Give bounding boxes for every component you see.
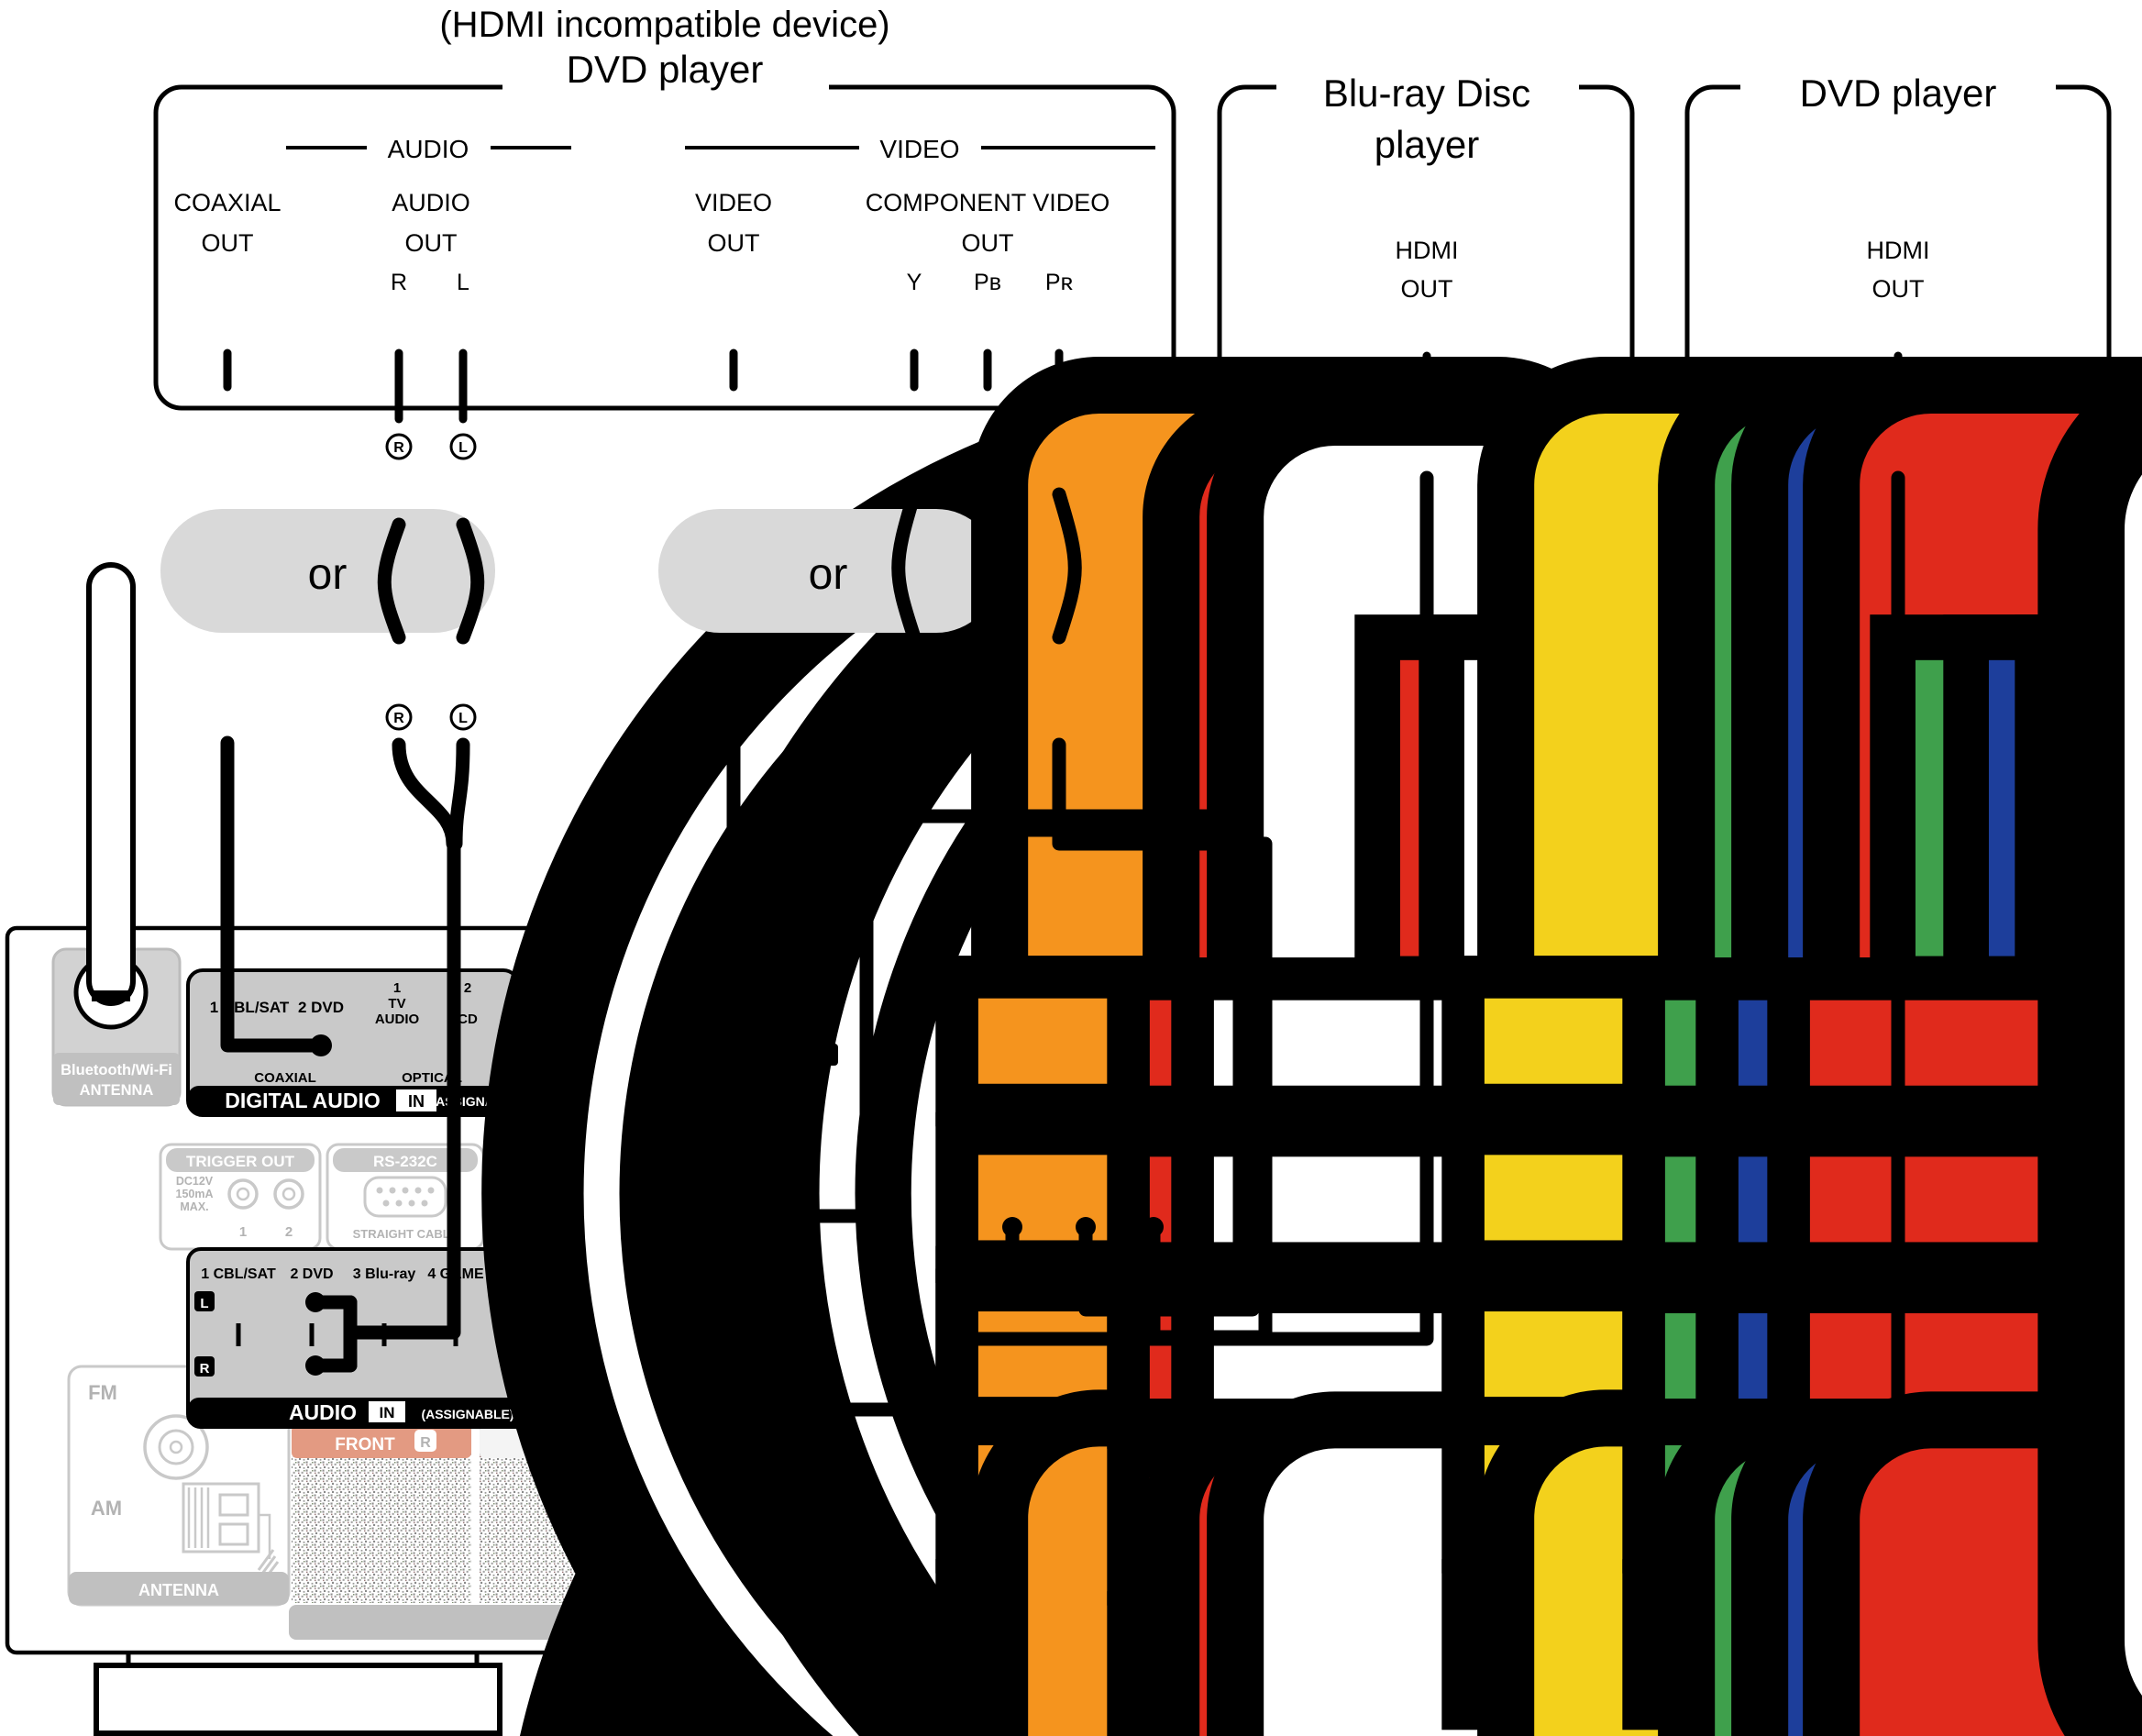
- am-label: AM: [91, 1497, 122, 1520]
- rs232-title: RS-232C: [373, 1153, 437, 1170]
- or-label-2: or: [809, 550, 848, 599]
- plug-r-letter2: R: [393, 711, 404, 726]
- ai-in: IN: [380, 1404, 395, 1421]
- dvd-analog-title: DVD player: [567, 48, 764, 91]
- da-tv-2: TV: [388, 996, 405, 1012]
- bt-left-line2: ANTENNA: [80, 1082, 154, 1099]
- ai-r: R: [200, 1361, 210, 1377]
- da-in: IN: [408, 1092, 425, 1111]
- plug-l-letter: L: [458, 440, 468, 456]
- trigger-v2: 150mA: [176, 1188, 214, 1200]
- diagram-canvas: Bluetooth/Wi-Fi ANTENNA HDMI OUT ZONE2 M…: [0, 0, 2142, 1736]
- or-pills: or or: [160, 509, 998, 633]
- component-out-label2: OUT: [962, 229, 1014, 257]
- video-out-label: VIDEO: [695, 189, 772, 216]
- bt-left-line1: Bluetooth/Wi-Fi: [61, 1062, 172, 1078]
- spk-front-r: FRONT: [335, 1435, 395, 1454]
- da-cd-1: 2: [464, 980, 471, 996]
- ai-c2: 2 DVD: [290, 1266, 333, 1282]
- trigger-2: 2: [285, 1224, 293, 1240]
- da-tv-1: 1: [393, 980, 401, 996]
- audio-out-label2: OUT: [405, 229, 458, 257]
- trigger-out-block: TRIGGER OUT DC12V 150mA MAX. 1 2: [160, 1144, 320, 1249]
- component-out-label: COMPONENT VIDEO: [866, 189, 1110, 216]
- trigger-1: 1: [239, 1224, 247, 1240]
- ai-c3: 3 Blu-ray: [353, 1266, 416, 1282]
- bluray-hdmi: HDMI: [1396, 237, 1459, 264]
- rs232-connector-icon: [365, 1178, 446, 1216]
- coaxial-out-label2: OUT: [202, 229, 254, 257]
- plug-l-letter2: L: [458, 711, 468, 726]
- dvd-analog-subtitle: (HDMI incompatible device): [439, 5, 889, 45]
- da-dvd-label: 2 DVD: [298, 999, 344, 1016]
- rs232-sub: STRAIGHT CABLE: [353, 1227, 458, 1241]
- spk-front-r-ch: R: [420, 1435, 431, 1451]
- ai-title: AUDIO: [289, 1400, 357, 1424]
- plug-r-letter: R: [393, 440, 404, 456]
- dvd-hdmi-hdmi: HDMI: [1867, 237, 1930, 264]
- video-out-label2: OUT: [708, 229, 760, 257]
- ai-c1: 1 CBL/SAT: [201, 1266, 276, 1282]
- bluray-title-1: Blu-ray Disc: [1323, 72, 1530, 115]
- audio-out-label: AUDIO: [392, 189, 470, 216]
- trigger-title: TRIGGER OUT: [186, 1153, 295, 1170]
- ai-l: L: [200, 1296, 208, 1311]
- audio-out-r: R: [391, 270, 407, 295]
- ai-assignable: (ASSIGNABLE): [421, 1407, 513, 1421]
- dvd-hdmi-out: OUT: [1872, 275, 1925, 303]
- da-coaxial: COAXIAL: [254, 1070, 316, 1086]
- bluray-hdmi-plug: [2081, 391, 2142, 1736]
- video-section-header: VIDEO: [879, 135, 959, 163]
- component-pb: Pʙ: [974, 270, 1001, 295]
- fm-label: FM: [88, 1381, 117, 1404]
- bluray-out: OUT: [1401, 275, 1453, 303]
- component-pr: Pʀ: [1045, 270, 1074, 295]
- component-y: Y: [907, 270, 922, 295]
- connection-diagram: Bluetooth/Wi-Fi ANTENNA HDMI OUT ZONE2 M…: [0, 0, 2142, 1736]
- da-tv-3: AUDIO: [375, 1012, 420, 1027]
- da-title: DIGITAL AUDIO: [225, 1089, 381, 1112]
- coaxial-out-label: COAXIAL: [173, 189, 281, 216]
- or-label-1: or: [308, 550, 348, 599]
- dvd-hdmi-title: DVD player: [1800, 72, 1997, 115]
- audio-section-header: AUDIO: [388, 135, 469, 163]
- audio-out-l: L: [457, 270, 469, 295]
- trigger-v3: MAX.: [180, 1200, 208, 1213]
- bt-antenna-left: [76, 565, 146, 1027]
- trigger-v1: DC12V: [176, 1175, 214, 1188]
- antenna-band: ANTENNA: [138, 1581, 219, 1599]
- bluray-title-2: player: [1375, 123, 1479, 166]
